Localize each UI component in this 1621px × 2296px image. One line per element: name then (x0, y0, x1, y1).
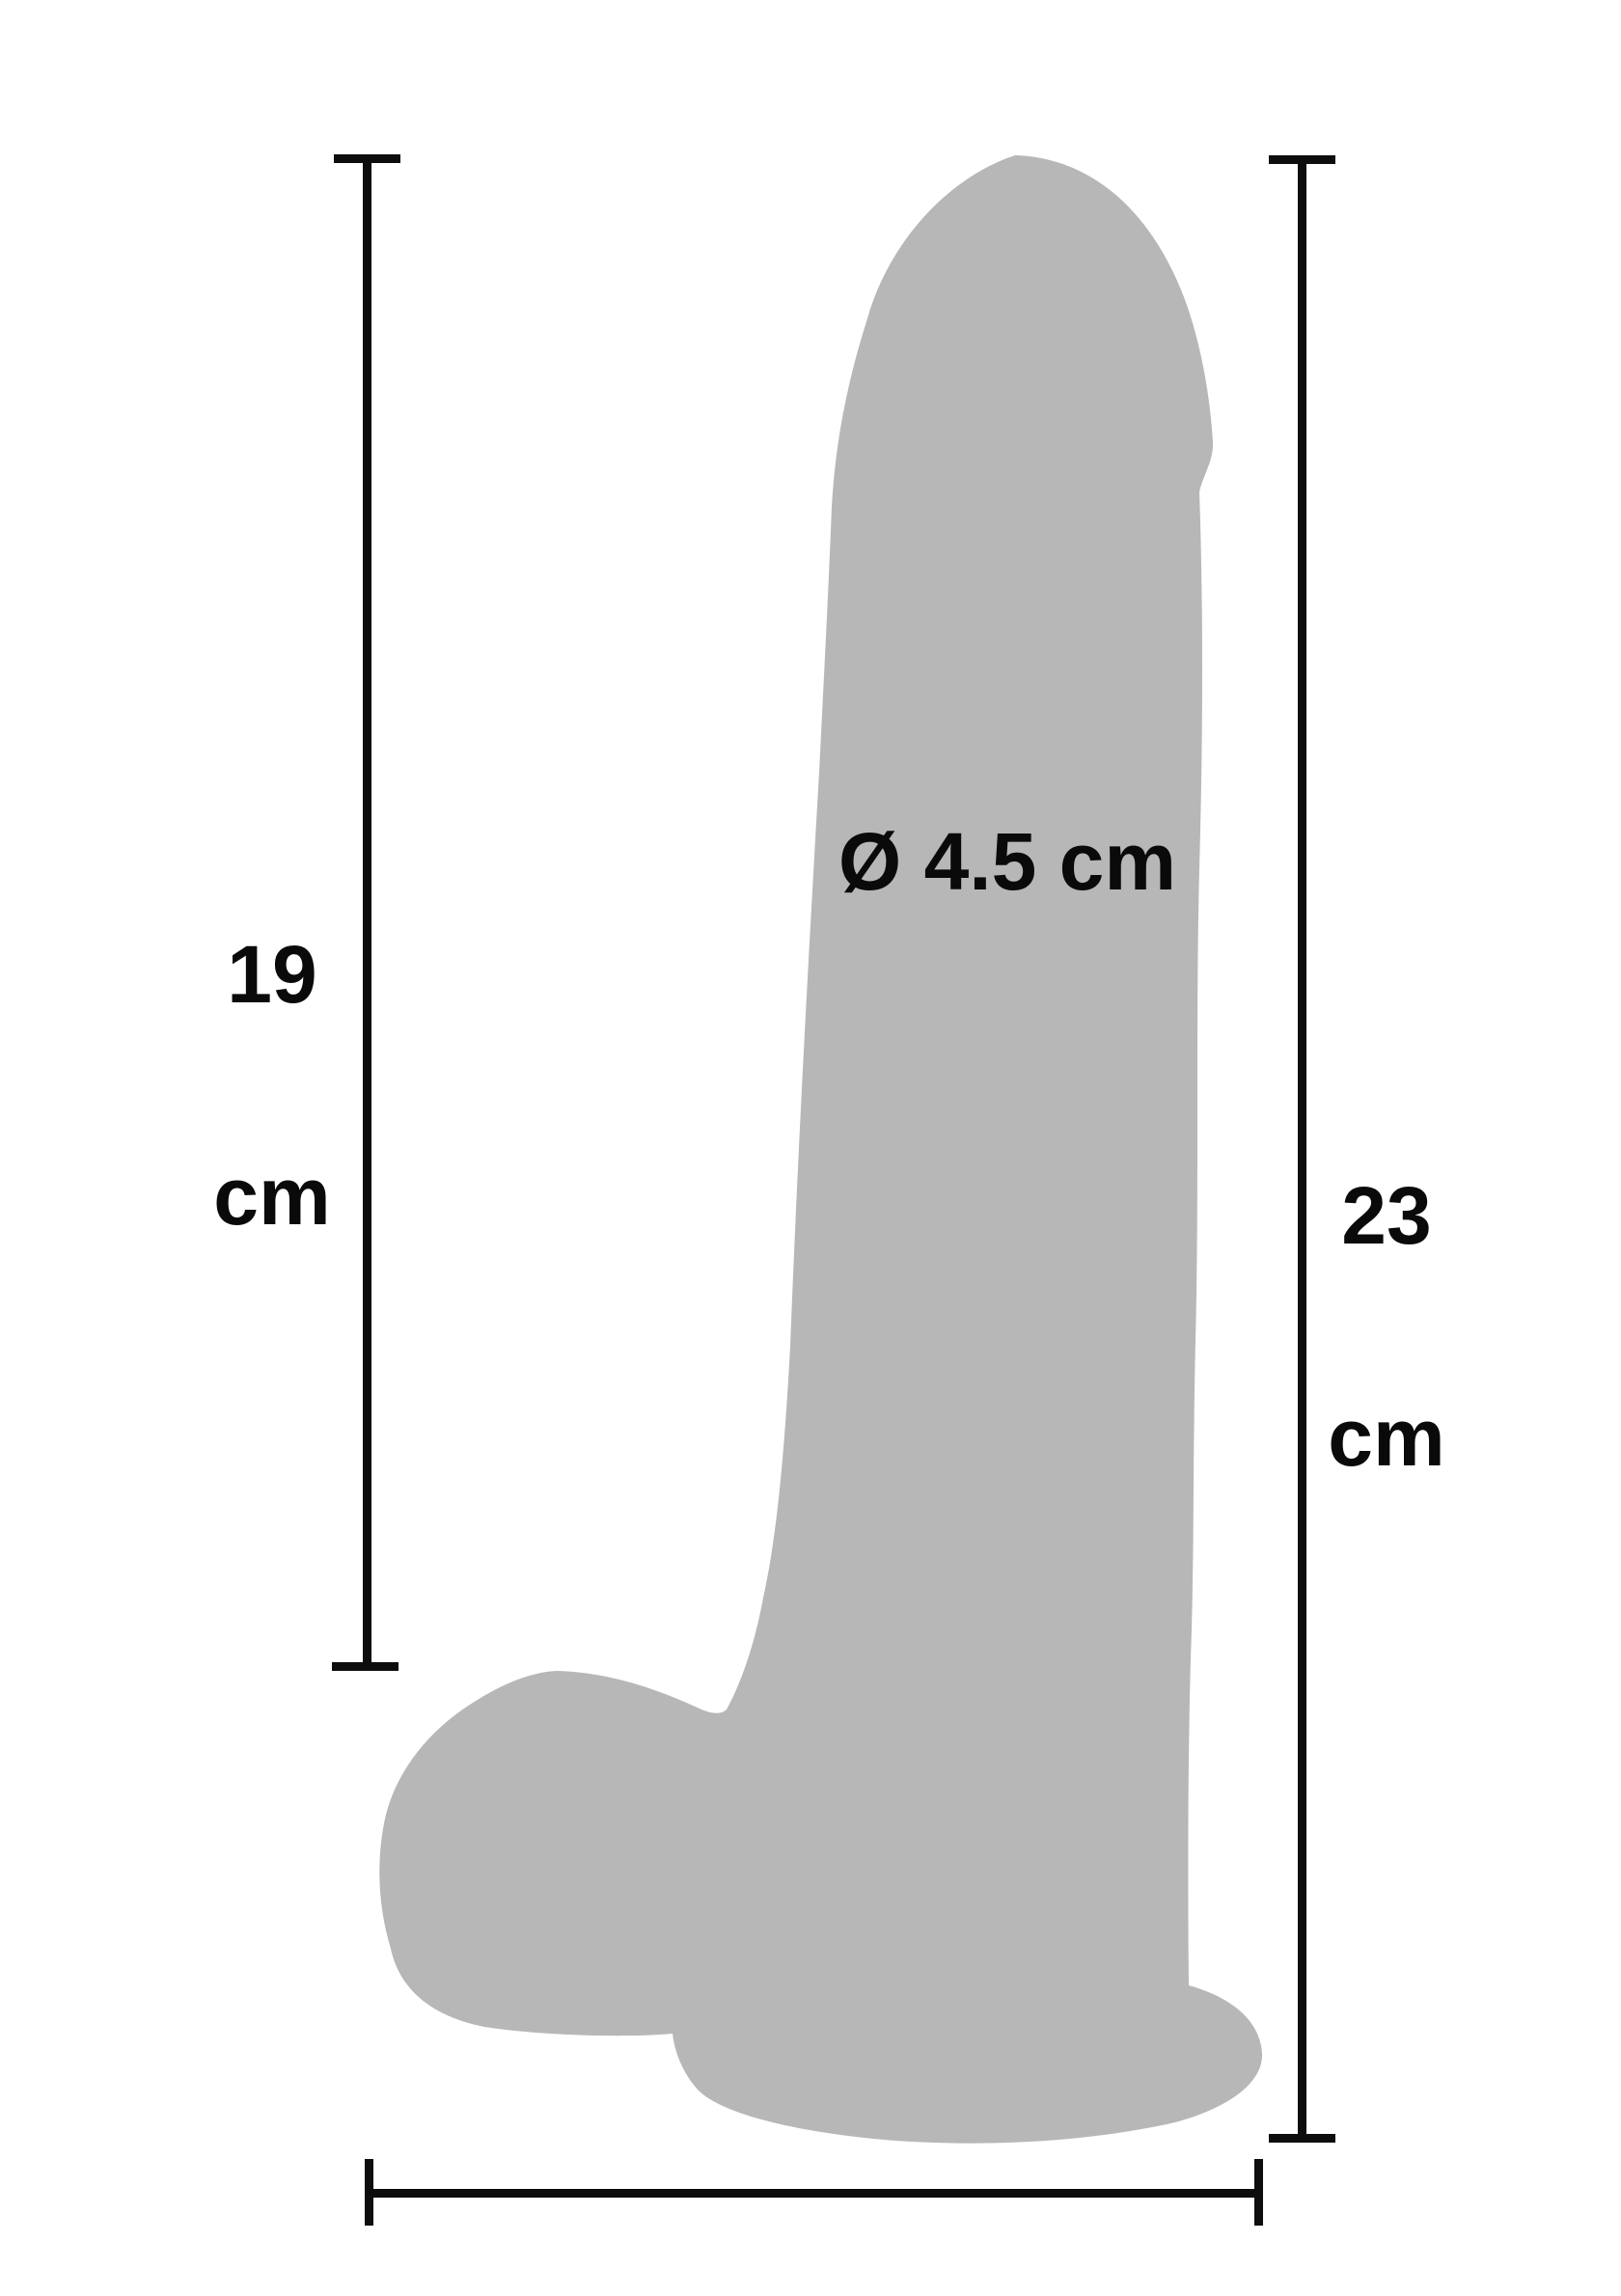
left-length-unit: cm (156, 1141, 388, 1252)
right-length-unit: cm (1271, 1382, 1502, 1493)
right-length-value: 23 (1271, 1161, 1502, 1271)
right-dimension-top-cap (1269, 155, 1335, 164)
bottom-dimension-left-tick (365, 2159, 373, 2226)
bottom-dimension-stem (369, 2189, 1259, 2198)
left-length-label: 19 cm (156, 808, 388, 1363)
diameter-text: Ø 4.5 cm (838, 816, 1176, 907)
right-length-label: 23 cm (1271, 1050, 1502, 1604)
bottom-dimension-right-tick (1254, 2159, 1263, 2226)
bottom-width-text: 10.5 cm (665, 2291, 962, 2296)
right-dimension-bottom-cap (1269, 2134, 1335, 2143)
left-dimension-bottom-cap (332, 1662, 398, 1671)
diameter-label: Ø 4.5 cm (766, 731, 1249, 905)
left-length-value: 19 (156, 919, 388, 1030)
dimension-diagram: 19 cm 23 cm Ø 4.5 cm 10.5 cm (0, 0, 1621, 2296)
product-silhouette (379, 155, 1262, 2144)
bottom-width-label: 10.5 cm (572, 2206, 1055, 2296)
left-dimension-top-cap (334, 154, 400, 163)
